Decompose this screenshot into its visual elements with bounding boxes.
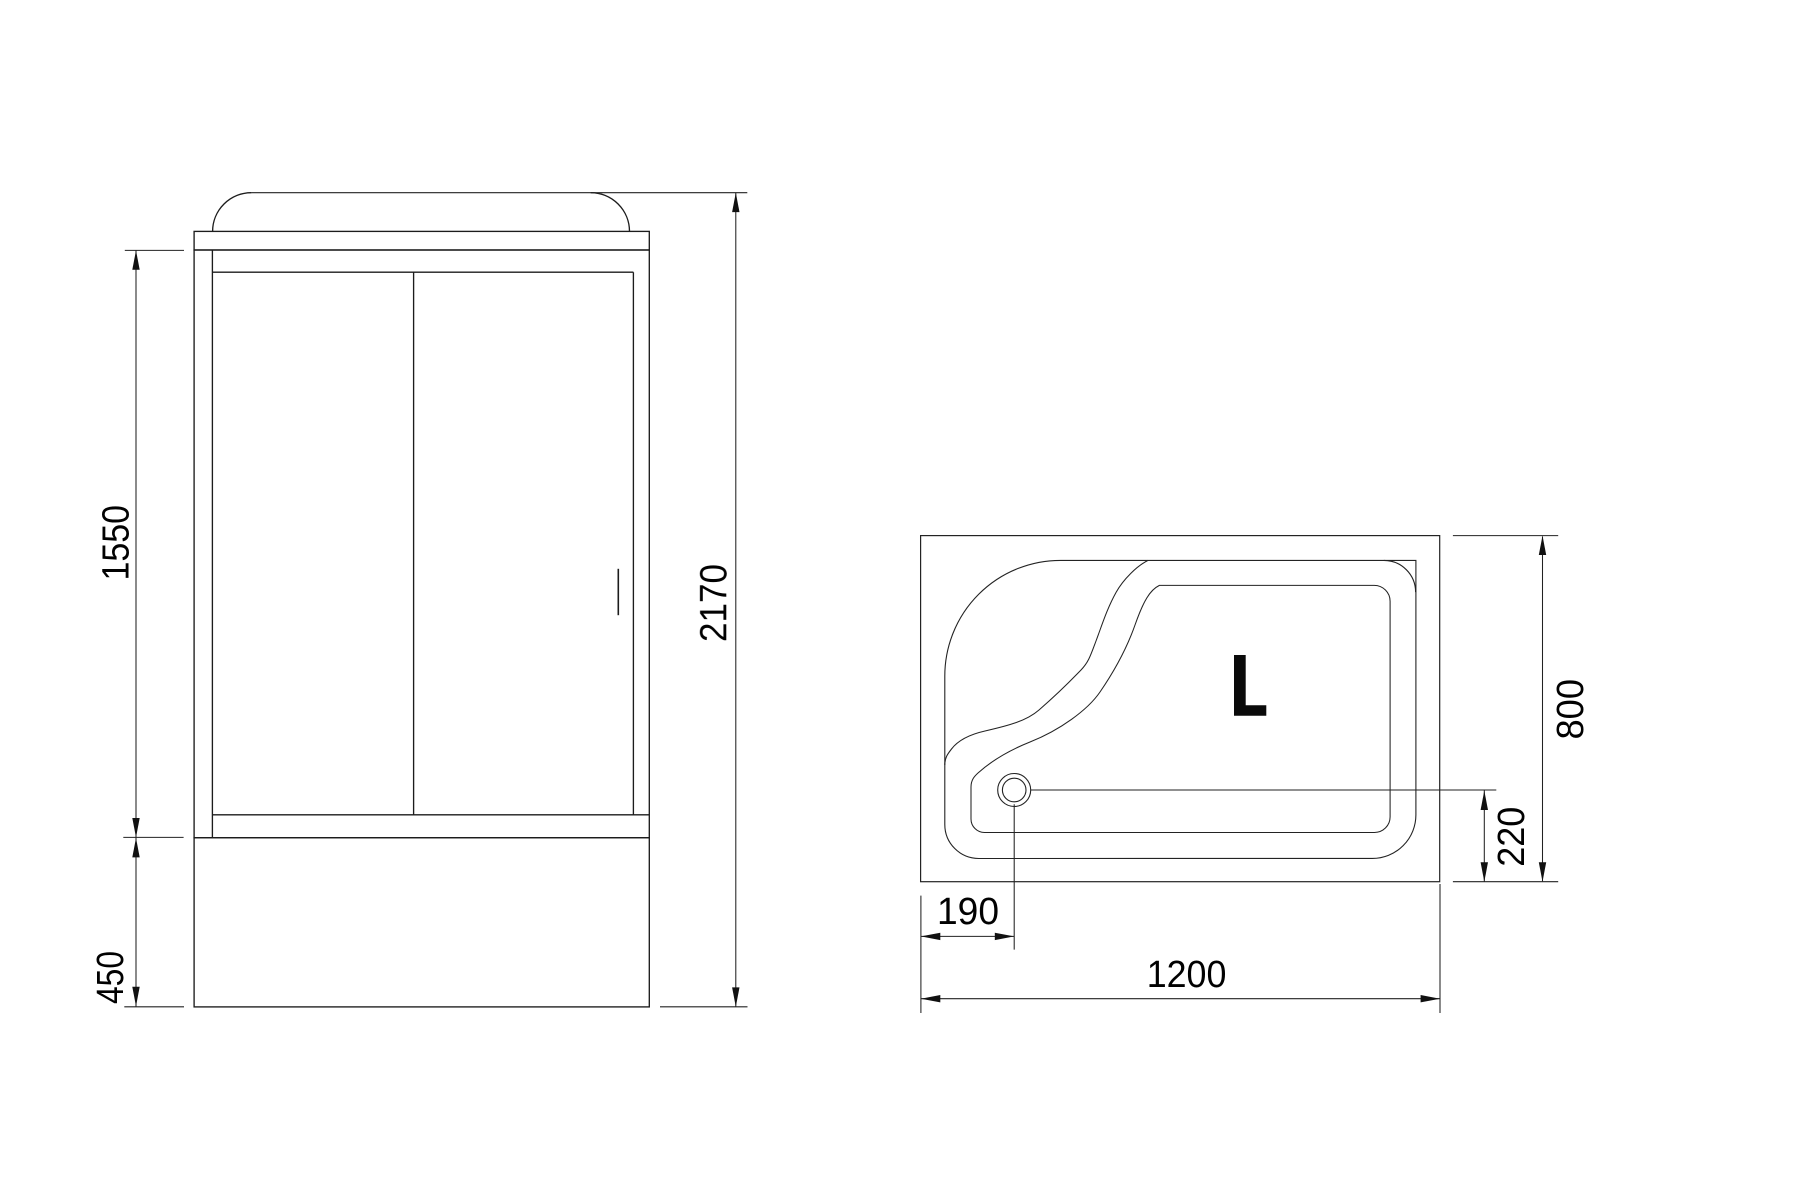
svg-text:450: 450 [90,951,132,1004]
svg-text:2170: 2170 [693,564,735,642]
svg-text:800: 800 [1550,679,1592,740]
svg-text:190: 190 [937,891,999,933]
svg-text:220: 220 [1491,807,1533,867]
svg-text:1200: 1200 [1147,954,1227,996]
svg-text:1550: 1550 [95,505,137,581]
